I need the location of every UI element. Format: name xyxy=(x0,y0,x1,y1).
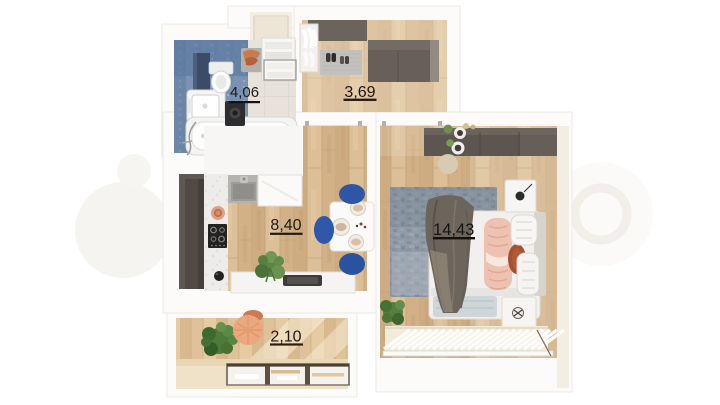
svg-text:8,40: 8,40 xyxy=(270,217,301,234)
svg-text:3,69: 3,69 xyxy=(344,84,375,101)
svg-text:2,10: 2,10 xyxy=(270,329,301,346)
svg-text:14,43: 14,43 xyxy=(433,221,474,239)
svg-text:4,06: 4,06 xyxy=(230,85,259,101)
